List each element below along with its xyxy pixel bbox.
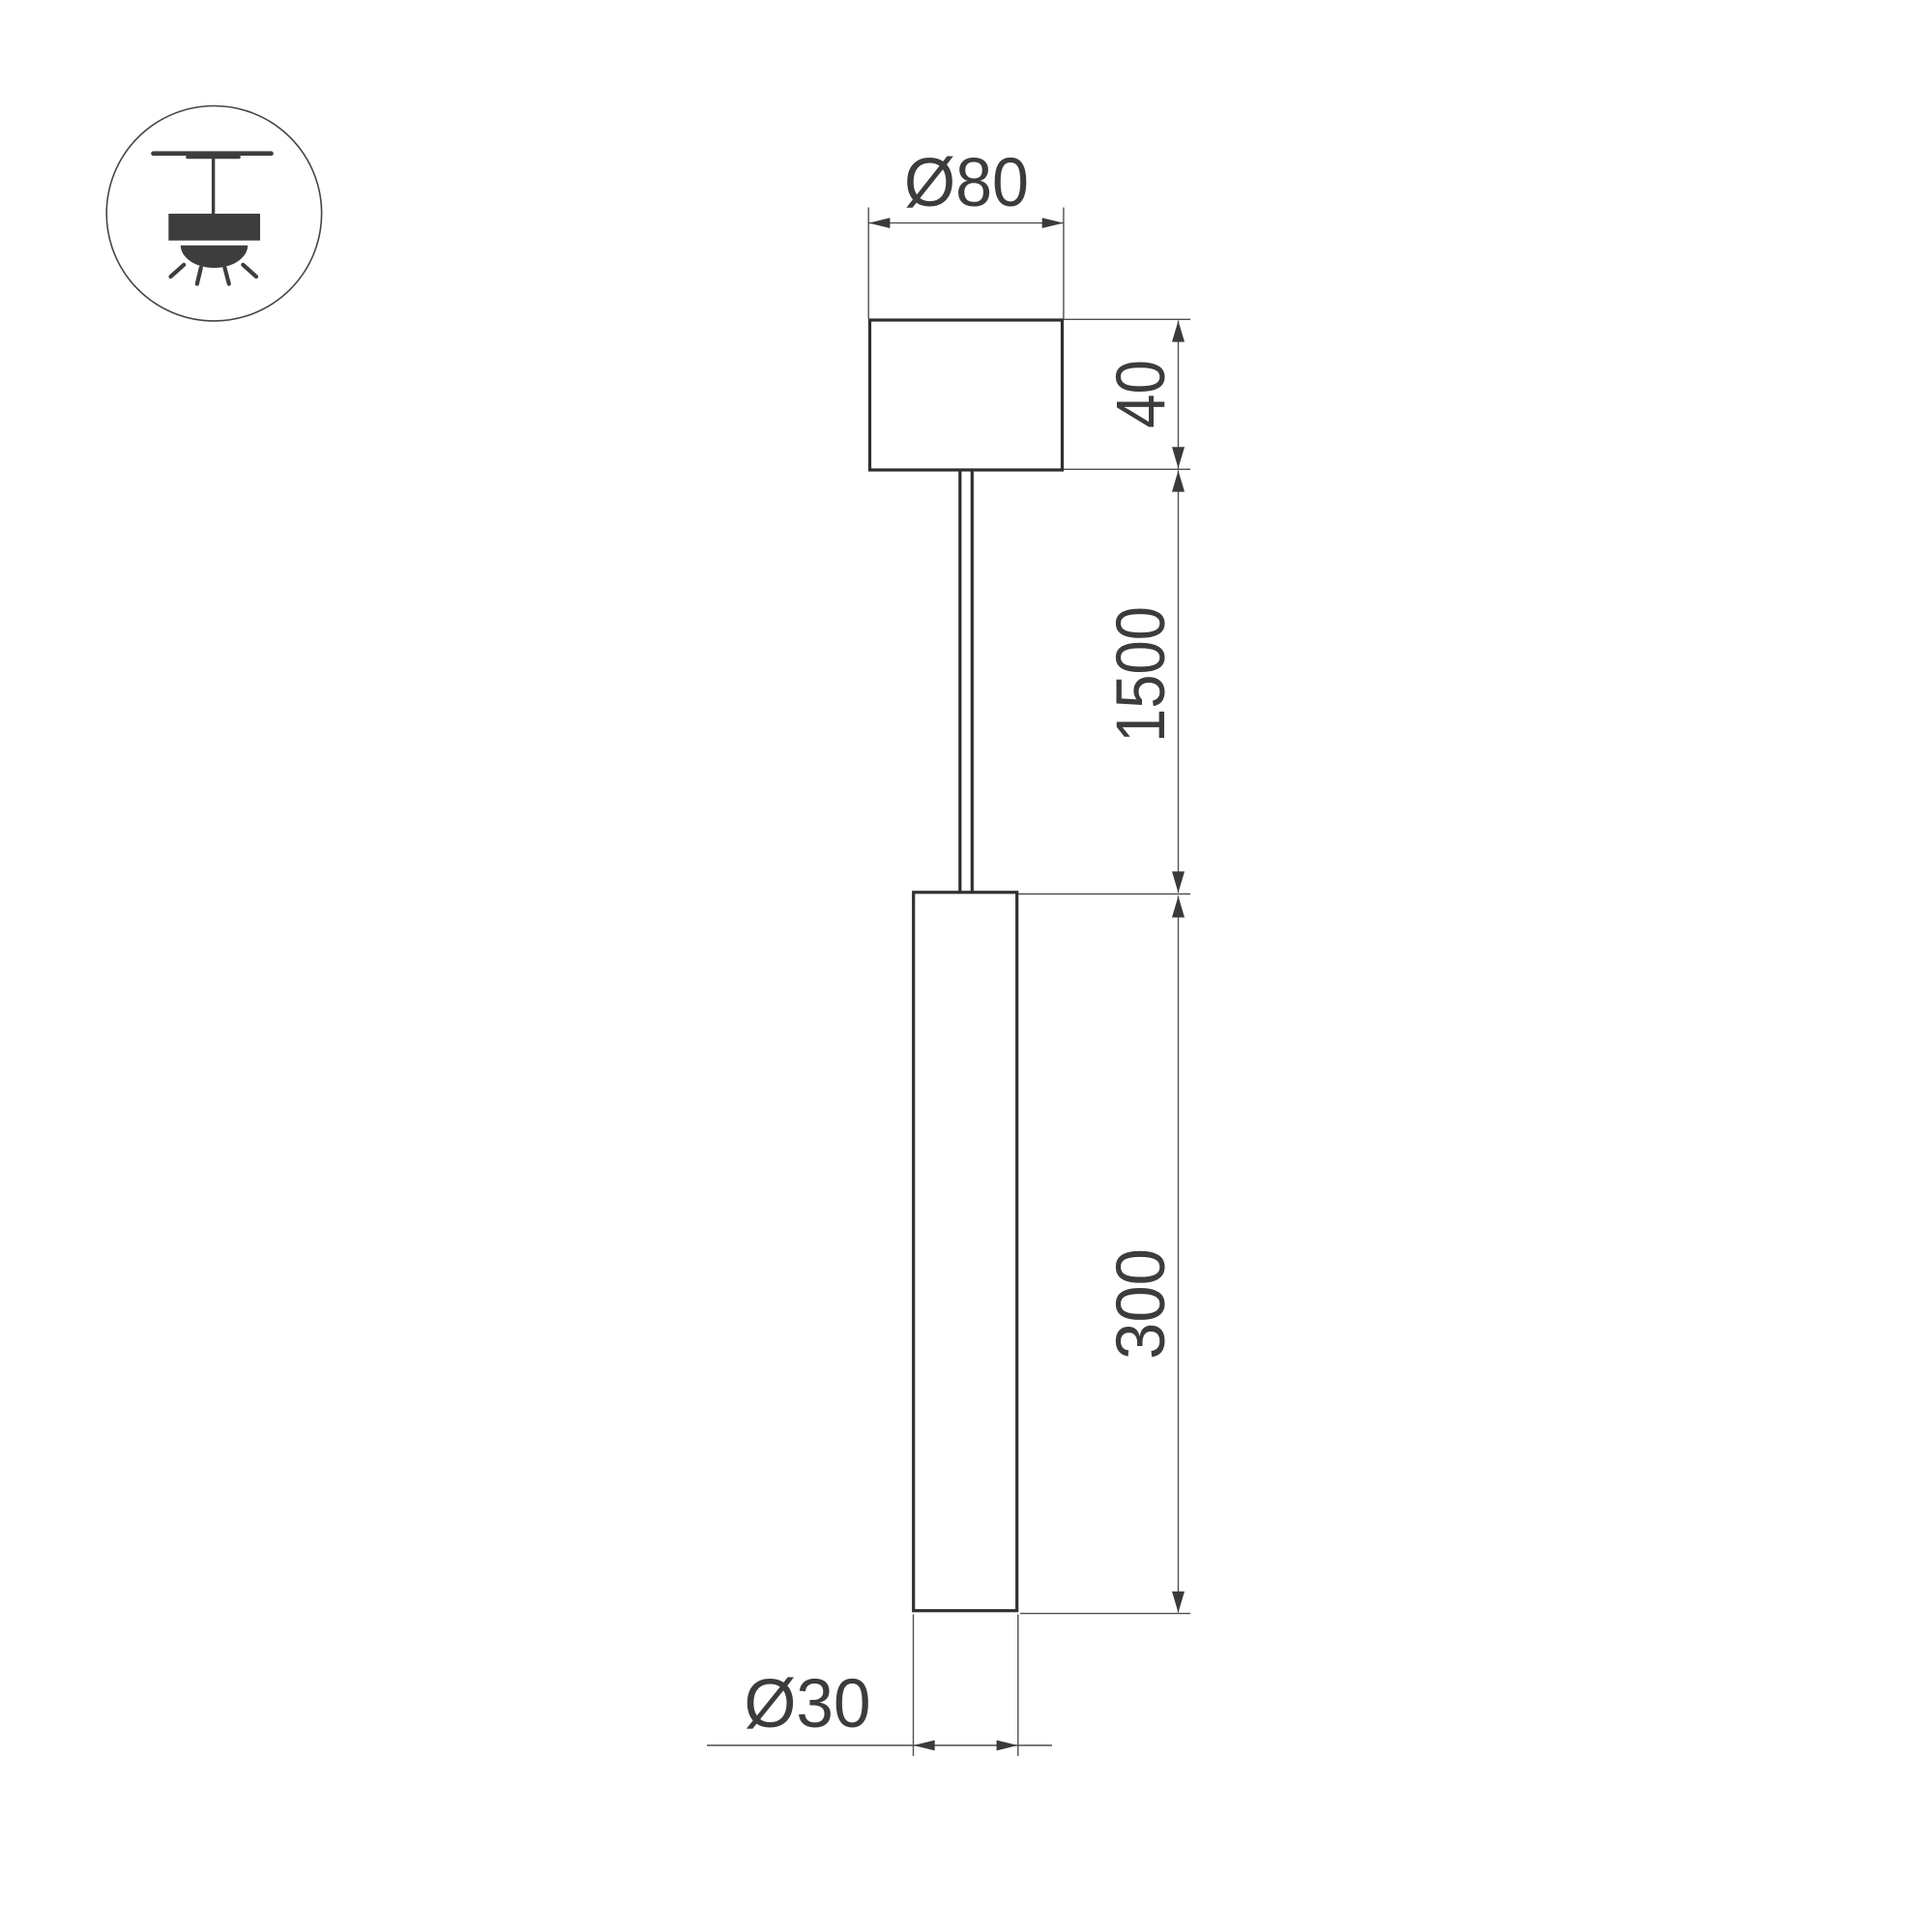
svg-text:300: 300 [1103, 1248, 1180, 1360]
svg-text:Ø80: Ø80 [904, 145, 1029, 221]
svg-text:Ø30: Ø30 [745, 1666, 871, 1742]
svg-text:40: 40 [1103, 360, 1180, 428]
svg-text:1500: 1500 [1103, 606, 1180, 743]
